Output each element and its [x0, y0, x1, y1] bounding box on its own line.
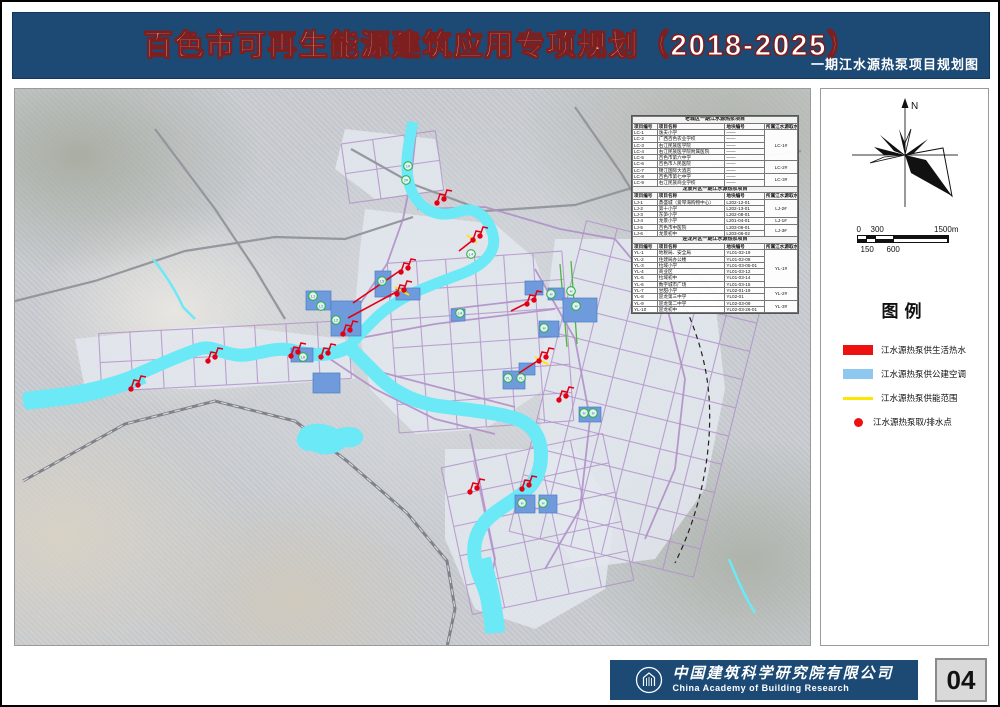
svg-text:L4: L4: [458, 311, 463, 316]
legend-item: 江水源热泵取/排水点: [843, 416, 988, 428]
page-subtitle: 一期江水源热泵项目规划图: [811, 54, 979, 73]
plan-sheet: 百色市可再生能源建筑应用专项规划（2018-2025） 一期江水源热泵项目规划图…: [0, 0, 1000, 707]
company-name-cn: 中国建筑科学研究院有限公司: [672, 666, 893, 683]
svg-text:H: H: [592, 411, 595, 416]
intake-point-cell: YL-3#: [764, 300, 797, 313]
company-name-en: China Academy of Building Research: [672, 683, 893, 694]
page-number: 04: [947, 665, 976, 696]
svg-text:H: H: [575, 304, 578, 309]
intake-point-cell: LC-1#: [764, 130, 797, 161]
intake-point-cell: LJ-3#: [764, 224, 797, 237]
legend-item: 江水源热泵供公建空调: [843, 368, 988, 380]
point-badge: H: [518, 499, 527, 508]
table-header-cell: 所属江水源取水点: [764, 193, 797, 199]
scale-label-1500: 1500m: [934, 225, 958, 234]
point-badge: H: [589, 409, 598, 418]
svg-text:L2: L2: [319, 304, 324, 309]
legend-swatch-rect: [843, 369, 873, 379]
point-badge: L5: [378, 277, 387, 286]
point-badge: YL: [504, 374, 513, 383]
svg-text:1#: 1#: [406, 164, 411, 169]
scale-label-150: 150: [861, 245, 874, 254]
table-section-title: 迎龙片区一期江水源热泵项目: [633, 237, 798, 244]
project-table-body: 老城区一期江水源热泵项目项目编号项目名称地块编号所属江水源取水点LC-1逸夫小学…: [633, 117, 798, 313]
intake-point-cell: YL-2#: [764, 288, 797, 301]
point-badge: 2#: [402, 176, 411, 185]
legend-title: 图例: [821, 297, 988, 322]
svg-text:L1: L1: [311, 294, 316, 299]
legend-label: 江水源热泵供生活热水: [881, 344, 966, 356]
north-arrow-icon: [901, 98, 908, 108]
legend-swatch-dot: [854, 418, 863, 427]
point-badge: L6: [299, 353, 308, 362]
point-badge: L2: [332, 316, 341, 325]
svg-text:H: H: [542, 501, 545, 506]
svg-text:YL: YL: [506, 376, 512, 381]
svg-text:L4: L4: [469, 252, 474, 257]
lake: [297, 424, 364, 455]
legend-item: 江水源热泵供能范围: [843, 392, 988, 404]
legend-swatch-rect: [843, 345, 873, 355]
scale-label-0: 0: [857, 225, 861, 234]
legend: 图例 江水源热泵供生活热水江水源热泵供公建空调江水源热泵供能范围江水源热泵取/排…: [821, 297, 988, 440]
north-label: N: [911, 101, 918, 112]
compass-rose-icon: N: [840, 95, 970, 215]
svg-text:H: H: [550, 292, 553, 297]
svg-text:H: H: [521, 501, 524, 506]
svg-text:L2: L2: [334, 318, 339, 323]
point-badge: L4: [456, 309, 465, 318]
point-badge: H: [580, 409, 589, 418]
scale-bar-segments: [857, 235, 949, 243]
page-number-box: 04: [935, 658, 987, 702]
scale-bar: 0 300 1500m 150 600: [857, 225, 953, 255]
point-badge: H: [547, 290, 556, 299]
header-banner: 百色市可再生能源建筑应用专项规划（2018-2025） 一期江水源热泵项目规划图: [12, 12, 990, 79]
legend-item: 江水源热泵供生活热水: [843, 344, 988, 356]
svg-text:L6: L6: [301, 355, 306, 360]
svg-text:H: H: [543, 326, 546, 331]
footer-bar: 中国建筑科学研究院有限公司 China Academy of Building …: [610, 660, 918, 700]
intake-point-cell: YL-1#: [764, 250, 797, 288]
intake-point-cell: LC-3#: [764, 174, 797, 187]
legend-swatch-line: [843, 397, 873, 400]
intake-point-cell: LC-2#: [764, 161, 797, 174]
scale-label-600: 600: [887, 245, 900, 254]
svg-text:L5: L5: [380, 279, 385, 284]
point-badge: L4: [467, 250, 476, 259]
point-badge: YL: [517, 374, 526, 383]
point-badge: 1#: [404, 162, 413, 171]
river: [481, 559, 495, 633]
scale-label-300: 300: [871, 225, 884, 234]
legend-label: 江水源热泵供公建空调: [881, 368, 966, 380]
legend-items: 江水源热泵供生活热水江水源热泵供公建空调江水源热泵供能范围江水源热泵取/排水点: [821, 344, 988, 428]
stream: [153, 259, 195, 319]
svg-text:2#: 2#: [404, 178, 409, 183]
legend-label: 江水源热泵取/排水点: [873, 416, 952, 428]
point-badge: L1: [309, 292, 318, 301]
point-badge: L2: [317, 302, 326, 311]
urban-area: [335, 129, 445, 199]
intake-point-cell: LJ-2#: [764, 199, 797, 218]
table-section-title: 龙景片区一期江水源热泵项目: [633, 186, 798, 193]
svg-text:YL: YL: [519, 376, 525, 381]
map-sidebar: N 0 300 1500m 150 600 图例 江水源热泵供生活热水江水源热泵…: [820, 88, 989, 646]
map-panel: 1#2#L4L1L2L2L5L4HHHHYLYLHHHHL6 老城区一期江水源热…: [14, 88, 811, 646]
point-badge: H: [567, 287, 576, 296]
heat-pump-building-zone: [563, 298, 597, 322]
table-header-cell: 所属江水源取水点: [764, 123, 797, 129]
cabr-logo-icon: [634, 665, 664, 695]
heat-pump-building-zone: [313, 373, 340, 393]
railway-dashes: [23, 401, 455, 645]
legend-label: 江水源热泵供能范围: [881, 392, 958, 404]
table-header-cell: 所属江水源取水点: [764, 244, 797, 250]
svg-text:H: H: [570, 289, 573, 294]
stream: [729, 559, 755, 613]
table-section-title: 老城区一期江水源热泵项目: [633, 117, 798, 124]
heat-pump-building-zone: [525, 281, 543, 295]
point-badge: H: [540, 324, 549, 333]
project-table: 老城区一期江水源热泵项目项目编号项目名称地块编号所属江水源取水点LC-1逸夫小学…: [631, 115, 799, 314]
railway: [23, 401, 455, 645]
point-badge: H: [572, 302, 581, 311]
highway-road: [15, 217, 413, 301]
svg-text:H: H: [583, 411, 586, 416]
point-badge: H: [539, 499, 548, 508]
